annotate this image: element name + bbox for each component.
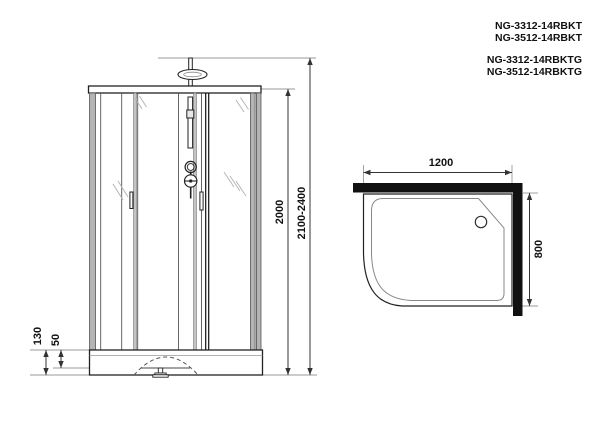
drain-circle [475, 216, 486, 227]
dim-label-depth: 800 [533, 235, 545, 263]
tray-front [90, 350, 263, 377]
door-handle-left [130, 192, 133, 209]
dim-label-width: 1200 [419, 157, 463, 169]
glass-reflections [113, 96, 249, 200]
door-handle-right [200, 192, 203, 210]
dim-label-glass-height: 2000 [274, 195, 286, 229]
model-number: NG-3512-14RBKTG [487, 67, 582, 79]
door-edge-strips [134, 93, 197, 350]
dim-label-total-height: 2100-2400 [296, 180, 308, 246]
technical-drawing-page: NG-3312-14RBKT NG-3512-14RBKT NG-3312-14… [0, 0, 600, 424]
model-number-list: NG-3312-14RBKT NG-3512-14RBKT NG-3312-14… [487, 21, 582, 78]
frame-posts [90, 93, 262, 350]
top-view-drawing [353, 165, 538, 316]
model-number: NG-3312-14RBKTG [487, 55, 582, 67]
glass-panel-lines [101, 93, 202, 350]
shower-head [178, 58, 207, 87]
wall-top [353, 183, 522, 193]
wall-right [513, 183, 523, 316]
front-dimension-lines [46, 58, 310, 375]
shower-rail [187, 97, 194, 148]
door-handles [130, 192, 203, 210]
dim-label-tray-height: 130 [32, 323, 44, 349]
model-number: NG-3312-14RBKT [487, 21, 582, 33]
door-meeting-stiles [206, 93, 209, 350]
roof-bar [89, 86, 262, 93]
front-dimension-arrows [43, 58, 312, 375]
dim-label-tray-step: 50 [50, 330, 62, 350]
model-number: NG-3512-14RBKT [487, 33, 582, 45]
